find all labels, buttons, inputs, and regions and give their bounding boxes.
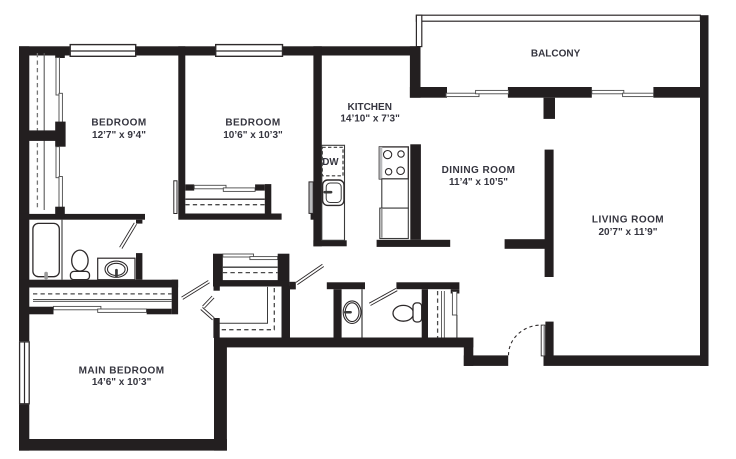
- svg-text:BALCONY: BALCONY: [531, 49, 581, 60]
- svg-text:14’6" x 10’3": 14’6" x 10’3": [92, 377, 152, 388]
- svg-text:12’7" x 9’4": 12’7" x 9’4": [92, 130, 146, 141]
- svg-text:DW: DW: [322, 157, 339, 168]
- svg-text:DINING ROOM: DINING ROOM: [442, 165, 516, 176]
- svg-text:MAIN BEDROOM: MAIN BEDROOM: [79, 365, 165, 376]
- svg-text:BEDROOM: BEDROOM: [91, 118, 146, 129]
- svg-text:BEDROOM: BEDROOM: [225, 118, 280, 129]
- svg-text:20’7" x 11’9": 20’7" x 11’9": [599, 227, 658, 238]
- svg-text:LIVING ROOM: LIVING ROOM: [592, 215, 664, 226]
- svg-text:14’10" x 7’3": 14’10" x 7’3": [340, 113, 400, 124]
- svg-text:11’4" x 10’5": 11’4" x 10’5": [449, 177, 508, 188]
- svg-text:KITCHEN: KITCHEN: [347, 102, 391, 113]
- svg-text:10’6" x 10’3": 10’6" x 10’3": [223, 130, 283, 141]
